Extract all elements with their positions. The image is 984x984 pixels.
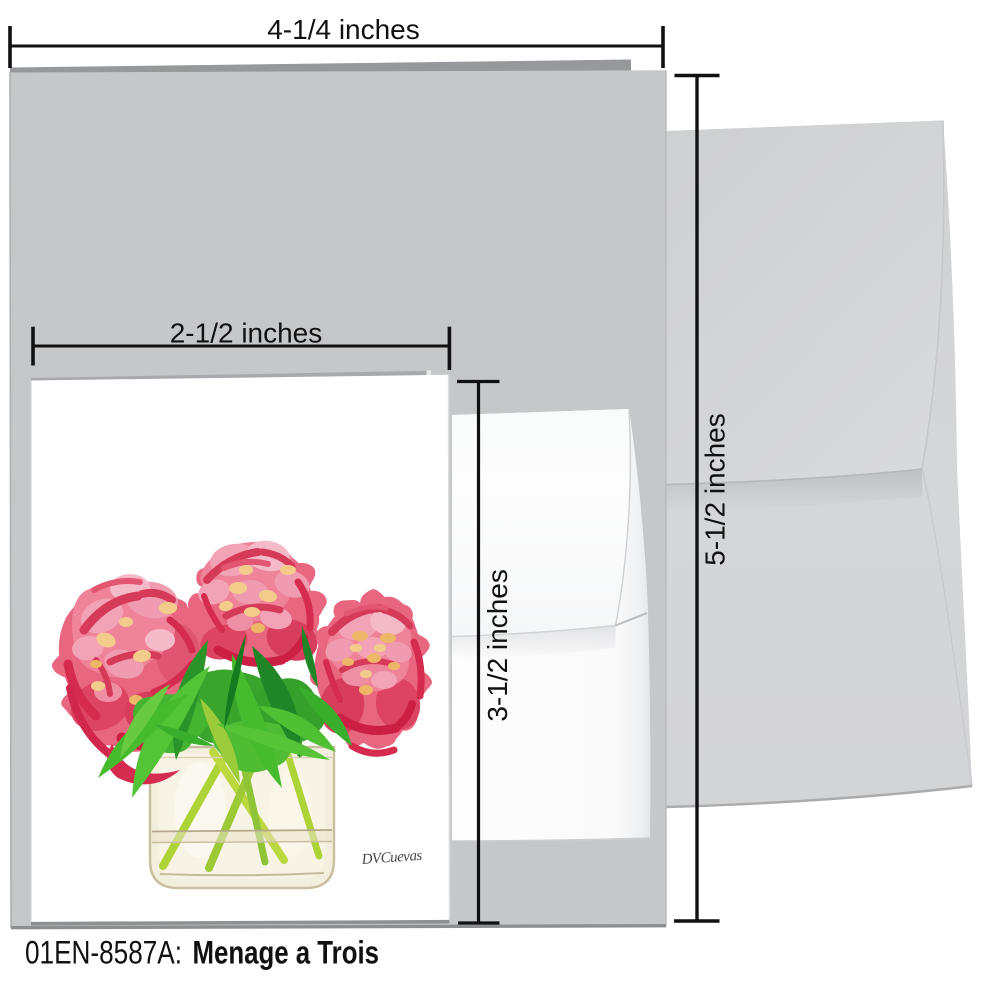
svg-text:3-1/2 inches: 3-1/2 inches (482, 569, 513, 722)
svg-text:Menage a Trois: Menage a Trois (193, 935, 380, 971)
svg-text:2-1/2 inches: 2-1/2 inches (170, 318, 323, 349)
svg-text:5-1/2 inches: 5-1/2 inches (699, 413, 730, 566)
svg-text:01EN-8587A:: 01EN-8587A: (25, 935, 182, 971)
svg-text:4-1/4 inches: 4-1/4 inches (267, 14, 420, 45)
